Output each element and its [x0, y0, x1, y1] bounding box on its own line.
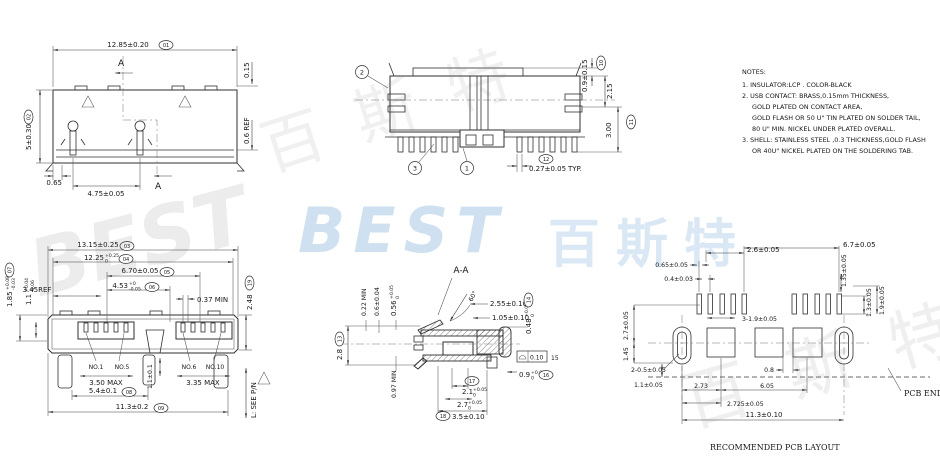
dim-065: 0.65±0.05 — [655, 262, 688, 269]
svg-text:1.1±0.1: 1.1±0.1 — [147, 364, 154, 389]
tol-plus: +0.25 — [105, 253, 119, 259]
svg-text:01: 01 — [163, 43, 169, 49]
dim-tab-height: 0.9±0.15 — [581, 59, 589, 92]
svg-text:1.1: 1.1 — [25, 294, 33, 305]
pin-label-no6: NO.6 — [182, 364, 197, 371]
tol-minus: -0.05 — [129, 287, 141, 293]
balloon-12: 12 — [539, 155, 553, 164]
dim-offset: 0.65 — [46, 179, 62, 187]
dim-27v: 2.7±0.05 — [623, 311, 630, 340]
svg-text:18: 18 — [440, 414, 446, 420]
svg-text:05: 05 — [164, 270, 170, 276]
note-line: 3. SHELL: STAINLESS STEEL ,0.3 THICKNESS… — [742, 136, 926, 144]
balloon-08: 08 — [122, 388, 136, 397]
svg-text:09: 09 — [158, 406, 164, 412]
dim-06: 0.6±0.04 — [374, 287, 381, 316]
balloon-10: 10 — [597, 56, 606, 70]
section-arrow-label: A — [118, 59, 125, 69]
balloon-06: 06 — [145, 283, 159, 292]
svg-text:0.15: 0.15 — [243, 62, 251, 78]
svg-text:5±0.30: 5±0.30 — [25, 124, 33, 150]
note-line: 2. USB CONTACT: BRASS,0.15mm THICKNESS, — [742, 92, 889, 100]
dim-shell-width: 13.15±0.25 — [77, 241, 119, 249]
svg-text:0: 0 — [395, 296, 401, 299]
note-line: GOLD FLASH OR 50 U" TIN PLATED ON SOLDER… — [752, 114, 921, 122]
svg-text:+0.04: +0.04 — [24, 278, 30, 292]
dim-056: 0.56 +0.05 0 — [389, 285, 401, 316]
dim-leg-span: 5.4±0.1 — [89, 387, 117, 395]
svg-text:11: 11 — [629, 119, 635, 125]
svg-text:1.35±0.05: 1.35±0.05 — [841, 254, 848, 287]
balloon-04: 04 — [119, 255, 133, 264]
pcb-layout-caption: RECOMMENDED PCB LAYOUT — [710, 443, 840, 452]
svg-text:0.6 REF: 0.6 REF — [243, 117, 251, 144]
balloon-09: 09 — [154, 404, 168, 413]
pin-label-no5: NO.5 — [115, 364, 130, 371]
revision-triangle — [258, 372, 270, 384]
svg-text:0.48: 0.48 — [525, 318, 533, 334]
svg-text:1.9±0.05: 1.9±0.05 — [879, 286, 886, 315]
section-arrow-label: A — [155, 182, 162, 192]
svg-text:1.85: 1.85 — [6, 291, 14, 307]
svg-text:2.7±0.05: 2.7±0.05 — [623, 311, 630, 340]
profile-tolerance-frame: 0.10 15 — [517, 351, 559, 362]
dim-contact-width-typ: TYP. — [567, 165, 582, 173]
svg-text:2.7: 2.7 — [457, 401, 468, 409]
length-note: L: SEE P/N — [250, 382, 258, 418]
svg-text:3: 3 — [413, 165, 417, 173]
pcb-pad-square — [707, 328, 735, 357]
dim-2725: 2.725±0.05 — [727, 401, 764, 408]
balloon-11: 11 — [627, 115, 636, 129]
drawing-sheet: BEST 百斯特 BEST 百 斯 特 百 斯 特 — [0, 0, 940, 466]
svg-text:17: 17 — [469, 379, 475, 385]
svg-text:60°: 60° — [467, 289, 479, 302]
dim-04: 0.4±0.03 — [664, 276, 693, 283]
dim-overall-width: 12.85±0.20 — [107, 41, 149, 49]
dim-105: 1.05±0.10 — [492, 314, 529, 322]
pin-label-no10: NO.10 — [206, 364, 225, 371]
svg-text:2.1: 2.1 — [462, 388, 473, 396]
pcb-pads-top-row — [697, 294, 842, 314]
dim-contact-span: 6.70±0.05 — [121, 267, 158, 275]
svg-text:06: 06 — [149, 285, 155, 291]
svg-text:0.6±0.04: 0.6±0.04 — [374, 287, 381, 316]
balloon-18: 18 — [436, 412, 450, 421]
dim-048: 0.48 +0.05 0 14 — [524, 293, 536, 334]
notes-title: NOTES: — [742, 68, 766, 76]
svg-text:02: 02 — [26, 114, 32, 120]
dim-13: 1.3±0.05 — [866, 288, 873, 317]
dim-248: 2.48 19 — [245, 276, 254, 310]
svg-text:2: 2 — [360, 69, 364, 77]
dim-319: 3-1.9±0.05 — [742, 316, 777, 323]
svg-text:0.10: 0.10 — [530, 355, 544, 362]
svg-text:04: 04 — [123, 257, 129, 263]
svg-text:10: 10 — [599, 60, 605, 66]
svg-text:14: 14 — [526, 297, 532, 303]
svg-text:0: 0 — [473, 393, 476, 399]
section-title: A-A — [453, 266, 469, 276]
dim-angle: 60° — [467, 289, 479, 302]
dim-right-port-max: 3.35 MAX — [186, 379, 220, 387]
pcb-layout-view: 2.6±0.05 6.7±0.05 0.65±0.05 0.4±0.03 1.3… — [623, 241, 940, 452]
svg-text:1: 1 — [465, 165, 469, 173]
svg-text:+0.05: +0.05 — [468, 400, 482, 406]
svg-text:2.48: 2.48 — [246, 294, 254, 310]
dim-latch-pitch: 4.75±0.05 — [87, 190, 124, 198]
svg-text:13: 13 — [337, 336, 343, 342]
svg-text:L: SEE P/N: L: SEE P/N — [250, 382, 258, 418]
dim-022min: 0.22 MIN — [361, 288, 368, 316]
dim-left-port-max: 3.50 MAX — [89, 379, 123, 387]
balloon-05: 05 — [160, 268, 174, 277]
svg-text:1.45: 1.45 — [623, 347, 630, 361]
pcb-pad-square — [793, 328, 822, 357]
dim-27: 2.7 +0.05 0 — [457, 400, 482, 412]
svg-text:0: 0 — [468, 406, 471, 412]
dim-tail-height: 3.00 — [605, 122, 613, 138]
fcf-ref: 15 — [551, 355, 559, 362]
dim-35: 3.5±0.10 — [452, 413, 485, 421]
svg-text:3.00: 3.00 — [605, 122, 613, 138]
svg-text:+0.08: +0.08 — [5, 276, 11, 290]
svg-text:19: 19 — [247, 280, 253, 286]
front-view: 13.15±0.25 03 12.25 +0.25 0 04 6.70±0.05… — [5, 241, 270, 418]
svg-text:2.8: 2.8 — [336, 349, 344, 360]
svg-text:-0.06: -0.06 — [30, 280, 36, 292]
dim-19: 1.9±0.05 — [879, 286, 886, 315]
dim-26: 2.6±0.05 — [747, 246, 780, 254]
dim-097min: 0.97 MIN — [391, 370, 398, 398]
svg-text:16: 16 — [543, 373, 549, 379]
drawing-canvas: A A 12.85±0.20 01 0.15 5±0.30 02 0.6 — [0, 0, 940, 466]
dim-67: 6.7±0.05 — [843, 241, 876, 249]
section-view: A-A 0.22 MIN 0.6±0.04 0.56 + — [335, 266, 559, 421]
dim-21: 2.1 +0.05 0 — [462, 387, 487, 399]
dim-mid-height: 2.15 — [606, 83, 614, 99]
dim-11: 1.1±0.05 — [634, 382, 663, 389]
dim-inner-width: 12.25 — [84, 254, 104, 262]
svg-text:0.22 MIN: 0.22 MIN — [361, 288, 368, 316]
tol-plus: +0 — [129, 281, 136, 287]
dim-205: 2-0.5±0.05 — [631, 367, 666, 374]
tol-minus: 0 — [105, 259, 108, 265]
balloon-17: 17 — [465, 377, 479, 386]
pcb-end-label: PCB END — [904, 389, 940, 398]
svg-text:1.3±0.05: 1.3±0.05 — [866, 288, 873, 317]
note-line: OR 40U" NICKEL PLATED ON THE SOLDERING T… — [752, 147, 913, 155]
svg-text:+0.05: +0.05 — [473, 387, 487, 393]
dim-total-width: 11.3±0.2 — [116, 403, 149, 411]
board-lock-left — [58, 355, 72, 388]
dim-min-gap: 0.37 MIN — [197, 296, 228, 304]
top-plan-view: A A 12.85±0.20 01 0.15 5±0.30 02 0.6 — [24, 41, 258, 199]
pcb-pad-square — [755, 328, 783, 357]
dim-edge-ref: 0.6 REF — [243, 117, 251, 144]
svg-text:0.56: 0.56 — [390, 300, 398, 316]
dim-255: 2.55±0.10 — [490, 300, 527, 308]
dim-contact-width: 0.27±0.05 — [529, 165, 566, 173]
svg-text:-0.03: -0.03 — [11, 278, 17, 290]
balloon-03: 03 — [120, 242, 134, 251]
dim-145: 1.45 — [623, 347, 630, 361]
notes-block: NOTES: 1. INSULATOR:LCP . COLOR-BLACK 2.… — [742, 68, 926, 155]
svg-text:2.15: 2.15 — [606, 83, 614, 99]
note-line: GOLD PLATED ON CONTACT AREA, — [752, 103, 862, 111]
dim-shell-height: 1.85 +0.08 -0.03 07 — [5, 263, 17, 307]
dim-605: 6.05 — [760, 383, 774, 390]
svg-text:0.9±0.15: 0.9±0.15 — [581, 59, 589, 92]
dim-135: 1.35±0.05 — [841, 254, 848, 287]
svg-text:0.97 MIN: 0.97 MIN — [391, 370, 398, 398]
port-opening-right — [176, 322, 232, 339]
note-line: 80 U" MIN. NICKEL UNDER PLATED OVERALL. — [752, 125, 895, 133]
svg-text:08: 08 — [126, 390, 132, 396]
dim-thickness: 0.15 — [243, 62, 251, 78]
dim-center-slot: 1.1±0.1 — [147, 364, 154, 389]
svg-text:0: 0 — [531, 376, 534, 382]
svg-text:0.9: 0.9 — [519, 371, 530, 379]
svg-text:0: 0 — [530, 314, 536, 317]
note-line: 1. INSULATOR:LCP . COLOR-BLACK — [742, 81, 852, 89]
svg-text:12: 12 — [543, 157, 549, 163]
dim-08: 0.8 — [764, 367, 774, 374]
svg-text:+0.05: +0.05 — [389, 285, 395, 299]
side-view: 2 3 1 0.9±0.15 10 2.15 3.00 1 — [355, 56, 636, 175]
dim-pitch-span: 4.53 — [112, 282, 128, 290]
svg-text:07: 07 — [7, 267, 13, 273]
port-opening-left — [78, 322, 134, 339]
pin-label-no1: NO.1 — [89, 364, 104, 371]
dim-overall-depth: 5±0.30 02 — [24, 110, 33, 150]
dim-opening-height: 1.1 +0.04 -0.06 — [24, 278, 36, 305]
balloon-01: 01 — [159, 41, 173, 50]
dim-28: 2.8 13 — [335, 332, 344, 360]
dim-113: 11.3±0.10 — [745, 411, 782, 419]
svg-text:03: 03 — [124, 244, 130, 250]
balloon-16: 16 — [539, 371, 553, 380]
dim-273: 2.73 — [694, 383, 708, 390]
